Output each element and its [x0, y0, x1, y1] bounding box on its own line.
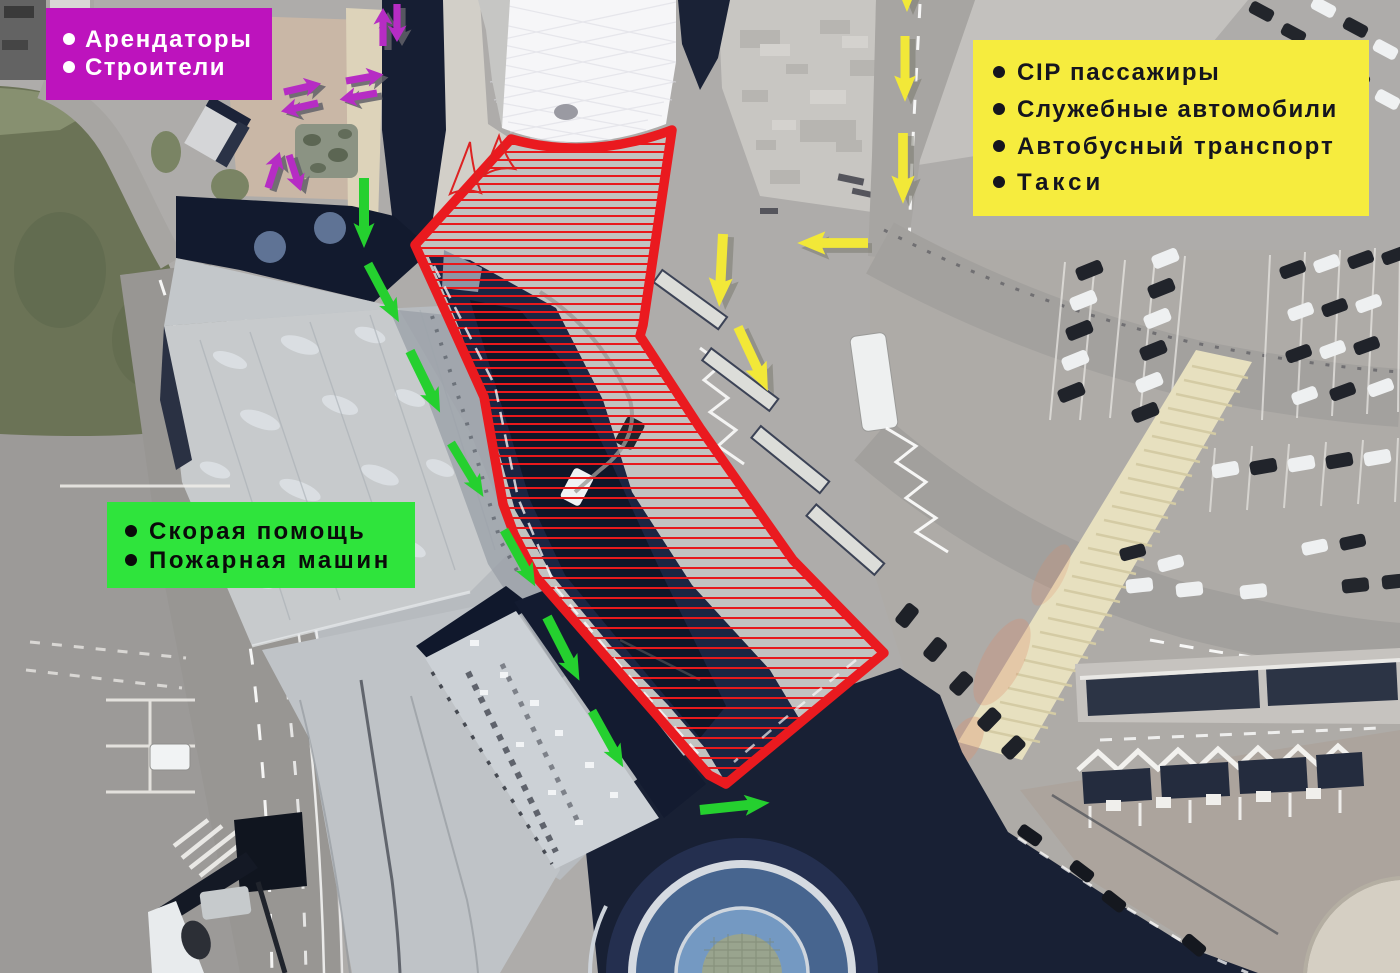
svg-text:Арендаторы: Арендаторы: [85, 26, 253, 53]
svg-text:Строители: Строители: [85, 54, 226, 81]
svg-text:Автобусный транспорт: Автобусный транспорт: [1017, 133, 1335, 160]
svg-text:Пожарная машин: Пожарная машин: [149, 547, 391, 574]
svg-text:Такси: Такси: [1017, 169, 1104, 196]
svg-text:CIP пассажиры: CIP пассажиры: [1017, 59, 1220, 86]
svg-text:Служебные автомобили: Служебные автомобили: [1017, 96, 1338, 123]
svg-text:Скорая помощь: Скорая помощь: [149, 518, 366, 545]
